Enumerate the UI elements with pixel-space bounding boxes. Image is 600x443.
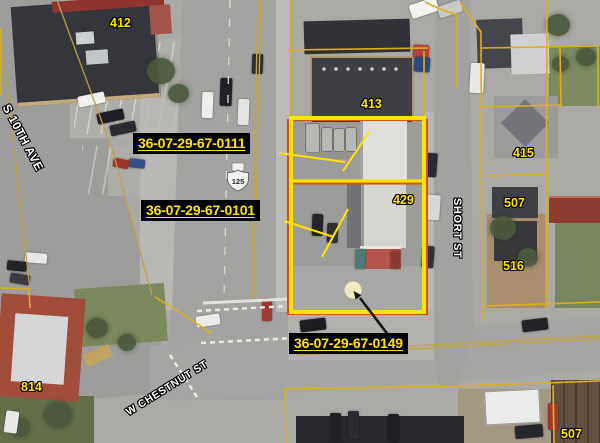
- storage-tank: [321, 127, 333, 152]
- roof-vent: [76, 31, 95, 44]
- storage-tank: [345, 127, 357, 152]
- car: [421, 246, 435, 269]
- car: [129, 158, 146, 169]
- parcel-id-label-0111: 36-07-29-67-0111: [133, 133, 250, 154]
- car: [202, 92, 214, 118]
- tree: [118, 334, 136, 351]
- car: [330, 413, 341, 441]
- car: [327, 223, 339, 243]
- roof-vent-row: [318, 66, 404, 72]
- car: [252, 54, 264, 74]
- truck-bed: [413, 56, 430, 72]
- parking-stripes: [82, 146, 116, 194]
- parcel-id-label-0149: 36-07-29-67-0149: [289, 333, 408, 354]
- building-roof: [296, 416, 464, 443]
- building-roof-white: [360, 118, 407, 182]
- car: [7, 260, 28, 272]
- tree: [44, 402, 72, 428]
- storage-tank: [305, 123, 320, 153]
- car: [355, 249, 365, 269]
- address-label-507-south: 507: [561, 427, 582, 441]
- building-roof-429: [362, 182, 406, 248]
- building-roof: [149, 4, 172, 34]
- building-roof: [510, 33, 549, 74]
- car: [312, 214, 324, 236]
- van: [409, 0, 440, 19]
- address-label-412: 412: [110, 16, 131, 30]
- sidewalk-strip: [276, 0, 290, 312]
- storage-tank: [333, 128, 345, 152]
- tree: [576, 48, 596, 66]
- car: [391, 251, 400, 269]
- address-label-413: 413: [361, 97, 382, 111]
- address-label-814: 814: [21, 380, 42, 394]
- tree: [546, 14, 570, 36]
- grass-patch: [555, 222, 600, 308]
- tree: [86, 318, 108, 338]
- parcel-id-label-0101: 36-07-29-67-0101: [141, 200, 260, 221]
- tree: [168, 84, 189, 103]
- car: [262, 299, 272, 321]
- trailer-roof: [484, 389, 541, 426]
- street-label-short-st: SHORT ST: [451, 198, 463, 258]
- tree: [552, 56, 569, 72]
- building-roof-red: [549, 196, 600, 223]
- car: [423, 153, 438, 178]
- tank-legs: [306, 152, 354, 159]
- address-label-507: 507: [504, 196, 525, 210]
- concrete-pad: [292, 266, 422, 312]
- building-roof: [11, 313, 69, 385]
- car: [220, 78, 233, 106]
- tree: [490, 216, 516, 240]
- address-label-429: 429: [393, 193, 414, 207]
- car: [25, 252, 48, 264]
- aerial-parcel-map: 125 S 10TH AVE SHORT ST W CHESTNUT ST 41…: [0, 0, 600, 443]
- car: [388, 414, 399, 442]
- address-label-516: 516: [503, 259, 524, 273]
- car: [348, 411, 359, 439]
- truck: [548, 403, 558, 430]
- building-side: [347, 182, 361, 248]
- roof-vent: [86, 49, 109, 65]
- car: [238, 99, 250, 125]
- tree: [147, 58, 175, 84]
- building-roof: [304, 19, 411, 55]
- address-label-415: 415: [513, 146, 534, 160]
- car: [425, 195, 441, 221]
- box-truck: [469, 63, 485, 94]
- car: [514, 424, 543, 439]
